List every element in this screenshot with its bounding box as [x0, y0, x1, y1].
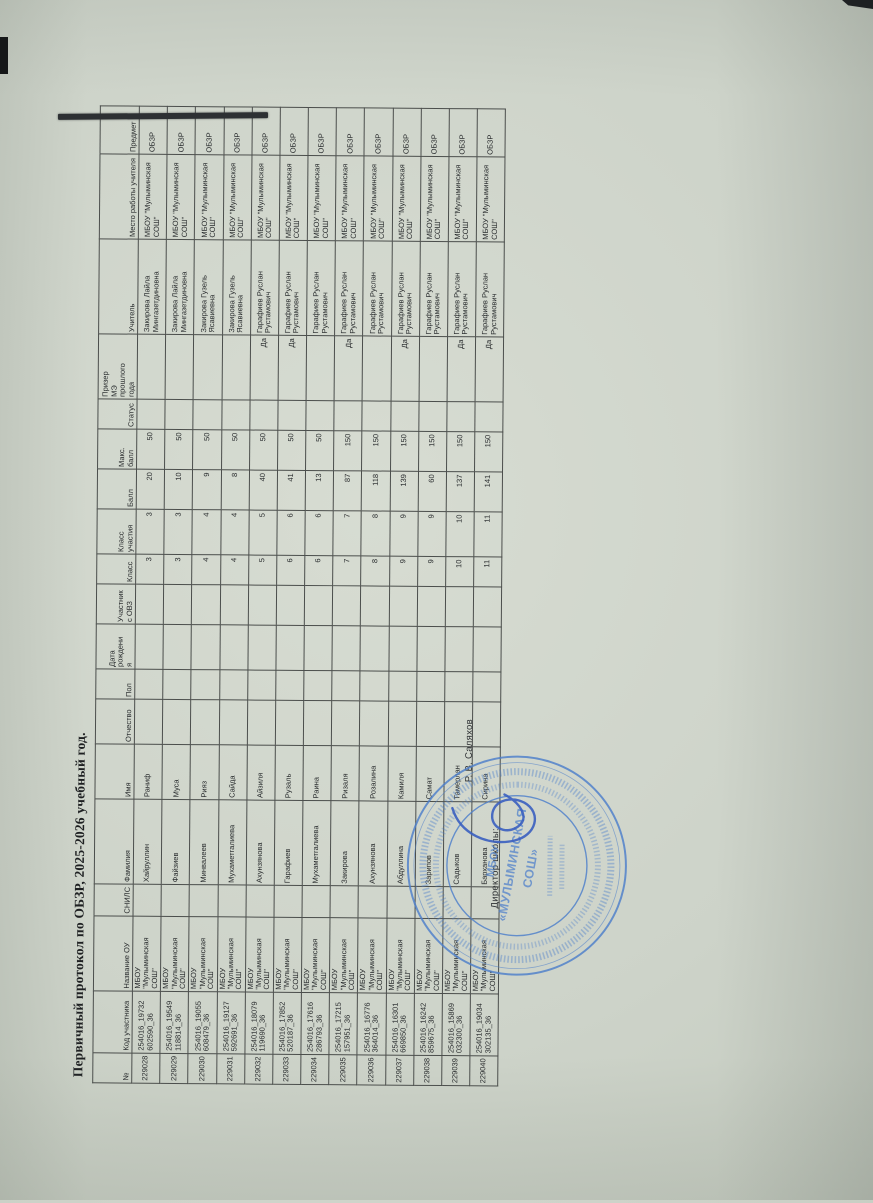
- table-cell: Розалина: [359, 746, 388, 801]
- table-cell: 9: [389, 557, 417, 587]
- table-cell: 4: [192, 555, 220, 585]
- table-cell: МБОУ "Мулыминская СОШ": [132, 916, 161, 991]
- table-cell: Айзиля: [247, 745, 276, 800]
- table-cell: [390, 402, 418, 432]
- table-cell: 50: [165, 430, 193, 470]
- table-cell: [417, 587, 445, 627]
- table-cell: [276, 586, 304, 626]
- table-cell: [218, 885, 246, 917]
- table-cell: 254016_18079 119690_36: [245, 992, 274, 1054]
- table-cell: 10: [164, 470, 192, 510]
- table-cell: [358, 886, 386, 918]
- table-cell: 229040: [470, 1056, 498, 1086]
- table-cell: [445, 672, 473, 702]
- table-cell: 229028: [132, 1053, 160, 1083]
- table-cell: МБОУ "Мулыминская СОШ": [330, 918, 359, 993]
- table-cell: 254016_19034 302135_36: [470, 994, 499, 1056]
- rotated-document: Первичный протокол по ОБЗР, 2025-2026 уч…: [0, 0, 873, 1200]
- table-cell: 40: [249, 470, 277, 510]
- table-cell: [163, 700, 192, 745]
- table-cell: 150: [390, 432, 418, 472]
- column-header: Призер МЭ прошлого года: [98, 334, 138, 399]
- table-cell: ОБЗР: [449, 109, 478, 157]
- table-cell: [163, 625, 192, 670]
- table-cell: МБОУ "Мулыминская СОШ": [364, 156, 393, 241]
- table-cell: 50: [193, 430, 221, 470]
- table-cell: МБОУ "Мулыминская СОШ": [195, 155, 224, 240]
- column-header: Класс: [97, 554, 136, 584]
- column-header: Имя: [95, 744, 134, 799]
- table-cell: МБОУ "Мулыминская СОШ": [189, 917, 218, 992]
- table-cell: Файзиев: [161, 800, 190, 885]
- table-cell: Гарафиев Руслан Рустамович: [278, 241, 307, 336]
- table-cell: [163, 670, 191, 700]
- table-cell: МБОУ "Мулыминская СОШ": [161, 916, 190, 991]
- column-header: №: [93, 1053, 132, 1083]
- table-cell: [388, 702, 417, 747]
- table-cell: [133, 885, 161, 917]
- table-cell: [219, 670, 247, 700]
- table-cell: [221, 400, 249, 430]
- table-cell: 254016_19549 118814_36: [160, 991, 189, 1053]
- table-cell: [219, 625, 248, 670]
- table-cell: 229039: [442, 1056, 470, 1086]
- column-header: Код участника: [93, 991, 132, 1053]
- table-cell: МБОУ "Мулыминская СОШ": [336, 156, 365, 241]
- table-cell: 5: [248, 555, 276, 585]
- table-cell: 5: [249, 510, 278, 555]
- table-cell: 229033: [273, 1054, 301, 1084]
- document-content: Первичный протокол по ОБЗР, 2025-2026 уч…: [0, 0, 873, 1203]
- table-cell: 254016_19127 592691_36: [216, 992, 245, 1054]
- table-cell: МБОУ "Мулыминская СОШ": [476, 157, 505, 242]
- table-cell: 229030: [188, 1054, 216, 1084]
- table-cell: 3: [136, 510, 165, 555]
- table-cell: [247, 670, 275, 700]
- table-cell: [276, 626, 305, 671]
- table-cell: [137, 400, 165, 430]
- table-cell: Раниф: [134, 745, 163, 800]
- table-cell: [248, 625, 277, 670]
- table-cell: [332, 586, 360, 626]
- table-cell: 6: [305, 556, 333, 586]
- table-cell: МБОУ "Мулыминская СОШ": [307, 156, 336, 241]
- table-cell: Гарафиев Руслан Рустамович: [363, 241, 392, 336]
- table-cell: Мухаметгалиева: [302, 801, 331, 886]
- table-cell: МБОУ "Мулыминская СОШ": [301, 917, 330, 992]
- table-cell: Да: [278, 336, 307, 401]
- table-cell: 229038: [413, 1055, 441, 1085]
- table-cell: [304, 586, 332, 626]
- table-cell: Гарафиев Руслан Рустамович: [391, 242, 420, 337]
- table-cell: Закирова Гузель Ясавиевна: [222, 240, 251, 335]
- table-cell: [304, 671, 332, 701]
- table-cell: ОБЗР: [280, 108, 309, 156]
- table-cell: Ризаля: [331, 746, 360, 801]
- table-cell: [165, 335, 194, 400]
- column-header: Пол: [96, 669, 135, 699]
- table-cell: [332, 626, 361, 671]
- table-cell: [165, 400, 193, 430]
- table-cell: 87: [333, 471, 361, 511]
- table-cell: ОБЗР: [421, 109, 450, 157]
- column-header: Место работы учителя: [99, 154, 139, 239]
- table-cell: 50: [249, 430, 277, 470]
- table-cell: [247, 700, 276, 745]
- table-cell: [362, 401, 390, 431]
- table-cell: [191, 700, 220, 745]
- table-cell: [275, 701, 304, 746]
- table-cell: Гарафиев Руслан Рустамович: [419, 242, 448, 337]
- table-cell: 3: [164, 510, 193, 555]
- table-cell: [302, 886, 330, 918]
- table-cell: 150: [334, 431, 362, 471]
- table-cell: 254016_17852 520187_36: [273, 992, 302, 1054]
- table-cell: [388, 672, 416, 702]
- table-cell: 254016_19732 602590_36: [132, 991, 161, 1053]
- table-cell: 254016_17616 286793_36: [301, 992, 330, 1054]
- column-header: Дата рождени я: [96, 624, 135, 669]
- table-cell: [332, 671, 360, 701]
- table-cell: Да: [334, 336, 363, 401]
- table-cell: [137, 335, 166, 400]
- table-cell: МБОУ "Мулыминская СОШ": [138, 155, 167, 240]
- table-cell: 229032: [244, 1054, 272, 1084]
- school-stamp: МБОУ «МУЛЫМИНСКАЯ СОШ»: [403, 752, 631, 980]
- table-cell: 50: [306, 431, 334, 471]
- table-cell: 9: [389, 512, 418, 557]
- table-cell: [475, 402, 503, 432]
- table-cell: 254016_16301 669850_36: [385, 993, 414, 1055]
- table-cell: МБОУ "Мулыминская СОШ": [273, 917, 302, 992]
- table-cell: 150: [418, 432, 446, 472]
- column-header: Участник с ОВЗ: [96, 584, 135, 624]
- table-cell: Гарафиев Руслан Рустамович: [335, 241, 364, 336]
- table-cell: [303, 701, 332, 746]
- table-cell: 4: [192, 510, 221, 555]
- table-cell: Да: [447, 337, 476, 402]
- table-cell: 60: [418, 472, 446, 512]
- table-cell: [135, 585, 163, 625]
- table-cell: 9: [418, 512, 447, 557]
- table-cell: [416, 702, 445, 747]
- table-cell: [246, 885, 274, 917]
- table-cell: [274, 886, 302, 918]
- table-cell: 141: [474, 472, 502, 512]
- table-cell: 150: [446, 432, 474, 472]
- table-cell: МБОУ "Мулыминская СОШ": [358, 918, 387, 993]
- table-cell: [250, 400, 278, 430]
- table-cell: 254016_16242 859675_36: [414, 993, 443, 1055]
- table-cell: [447, 402, 475, 432]
- table-cell: Муса: [162, 745, 191, 800]
- table-cell: [134, 700, 163, 745]
- table-cell: [417, 627, 446, 672]
- table-cell: [278, 401, 306, 431]
- table-cell: [360, 671, 388, 701]
- scan-artifact-left-edge: [0, 37, 8, 74]
- table-cell: [332, 701, 361, 746]
- column-header: СНИЛС: [94, 884, 133, 916]
- table-cell: 139: [390, 472, 418, 512]
- table-cell: Закирова: [330, 801, 359, 886]
- table-cell: 10: [446, 512, 475, 557]
- table-cell: 229029: [160, 1053, 188, 1083]
- table-cell: [163, 585, 191, 625]
- column-header: Отчество: [95, 699, 134, 744]
- table-cell: ОБЗР: [336, 108, 365, 156]
- table-cell: [416, 672, 444, 702]
- table-cell: 6: [305, 511, 334, 556]
- column-header: Статус: [98, 399, 137, 429]
- table-cell: [135, 670, 163, 700]
- table-cell: 50: [137, 430, 165, 470]
- table-cell: 229034: [301, 1054, 329, 1084]
- table-cell: [362, 336, 391, 401]
- column-header: Класс участия: [97, 509, 136, 554]
- table-cell: 150: [475, 432, 503, 472]
- table-cell: МБОУ "Мулыминская СОШ": [420, 157, 449, 242]
- table-cell: [334, 401, 362, 431]
- table-cell: [193, 400, 221, 430]
- table-cell: МБОУ "Мулыминская СОШ": [166, 155, 195, 240]
- table-cell: 41: [277, 471, 305, 511]
- table-cell: 8: [361, 511, 390, 556]
- table-cell: 50: [221, 430, 249, 470]
- table-cell: [419, 337, 448, 402]
- table-cell: Гарафиев Руслан Рустамович: [447, 242, 476, 337]
- table-cell: [306, 336, 335, 401]
- stamp-center-line3: СОШ»: [520, 847, 541, 889]
- table-cell: Рузаль: [275, 746, 304, 801]
- table-cell: ОБЗР: [477, 109, 506, 157]
- table-cell: Закирова Лайла Мингазетдиновна: [138, 240, 167, 335]
- table-cell: ОБЗР: [364, 108, 393, 156]
- column-header: Балл: [97, 469, 136, 509]
- table-cell: [445, 587, 473, 627]
- table-cell: Да: [475, 337, 504, 402]
- table-cell: [388, 627, 417, 672]
- table-cell: [191, 670, 219, 700]
- table-cell: [276, 671, 304, 701]
- table-cell: 137: [446, 472, 474, 512]
- table-cell: 9: [193, 470, 221, 510]
- table-cell: [419, 402, 447, 432]
- table-cell: Да: [391, 337, 420, 402]
- table-cell: 50: [277, 431, 305, 471]
- table-cell: [360, 701, 389, 746]
- column-header: Фамилия: [94, 799, 134, 884]
- table-cell: [222, 335, 251, 400]
- table-cell: [220, 585, 248, 625]
- column-header: Учитель: [99, 239, 139, 334]
- table-cell: 11: [474, 512, 503, 557]
- table-cell: Гарафиев: [274, 801, 303, 886]
- table-cell: 8: [361, 556, 389, 586]
- table-cell: [189, 885, 217, 917]
- table-cell: 229031: [216, 1054, 244, 1084]
- page-title: Первичный протокол по ОБЗР, 2025-2026 уч…: [70, 732, 89, 1077]
- table-cell: [161, 885, 189, 917]
- table-cell: Ахунзянова: [246, 800, 275, 885]
- table-cell: ОБЗР: [308, 108, 337, 156]
- table-cell: Хайруллин: [133, 800, 162, 885]
- table-cell: 13: [305, 471, 333, 511]
- table-cell: 254016_15869 032300_36: [442, 994, 471, 1056]
- table-cell: 3: [136, 555, 164, 585]
- table-cell: МБОУ "Мулыминская СОШ": [279, 156, 308, 241]
- table-cell: 20: [136, 470, 164, 510]
- table-cell: Раина: [303, 746, 332, 801]
- column-header: Название ОУ: [93, 916, 133, 991]
- table-cell: 118: [362, 471, 390, 511]
- table-cell: Да: [250, 335, 279, 400]
- table-cell: 4: [220, 555, 248, 585]
- table-cell: [248, 585, 276, 625]
- table-cell: [219, 700, 248, 745]
- table-cell: Ахунзянова: [359, 801, 388, 886]
- table-cell: МБОУ "Мулыминская СОШ": [392, 157, 421, 242]
- table-cell: [193, 335, 222, 400]
- table-cell: [473, 587, 501, 627]
- table-cell: 229037: [385, 1055, 413, 1085]
- table-cell: Закирова Гузель Ясавиевна: [194, 240, 223, 335]
- table-cell: 11: [474, 557, 502, 587]
- signature-squiggle: [446, 788, 546, 853]
- table-cell: [389, 587, 417, 627]
- table-cell: МБОУ "Мулыминская СОШ": [448, 157, 477, 242]
- table-cell: [304, 626, 333, 671]
- table-cell: Закирова Лайла Мингазетдиновна: [166, 240, 195, 335]
- table-cell: 8: [221, 470, 249, 510]
- table-cell: Мухаметгалиева: [218, 800, 247, 885]
- table-cell: 254016_19055 608479_36: [188, 992, 217, 1054]
- table-cell: 254016_17215 157951_36: [329, 993, 358, 1055]
- table-cell: Сайда: [218, 745, 247, 800]
- table-cell: 229036: [357, 1055, 385, 1085]
- table-cell: 254016_16776 364014_36: [357, 993, 386, 1055]
- table-cell: Гарафиев Руслан Рустамович: [307, 241, 336, 336]
- column-header: Макс. балл: [98, 429, 137, 469]
- table-cell: МБОУ "Мулыминская СОШ": [251, 155, 280, 240]
- table-cell: 6: [276, 556, 304, 586]
- table-cell: МБОУ "Мулыминская СОШ": [245, 917, 274, 992]
- table-cell: Гарафиев Руслан Рустамович: [250, 240, 279, 335]
- table-cell: [192, 585, 220, 625]
- table-cell: МБОУ "Мулыминская СОШ": [223, 155, 252, 240]
- table-cell: [330, 886, 358, 918]
- table-cell: 229035: [329, 1055, 357, 1085]
- table-cell: [135, 625, 164, 670]
- table-cell: 7: [333, 511, 362, 556]
- table-cell: 7: [333, 556, 361, 586]
- table-cell: 10: [445, 557, 473, 587]
- table-cell: [361, 586, 389, 626]
- table-cell: Гарафиев Руслан Рустамович: [476, 242, 505, 337]
- table-cell: [306, 401, 334, 431]
- table-cell: 9: [417, 557, 445, 587]
- table-cell: [473, 627, 502, 672]
- table-cell: МБОУ "Мулыминская СОШ": [217, 917, 246, 992]
- table-cell: Минвалеев: [190, 800, 219, 885]
- table-cell: 6: [277, 511, 306, 556]
- table-cell: 4: [220, 510, 249, 555]
- table-cell: Рияз: [190, 745, 219, 800]
- table-cell: [472, 702, 501, 747]
- table-cell: [445, 627, 474, 672]
- table-cell: [473, 672, 501, 702]
- table-cell: [360, 626, 389, 671]
- table-cell: 3: [164, 555, 192, 585]
- table-cell: 150: [362, 431, 390, 471]
- table-cell: ОБЗР: [393, 109, 422, 157]
- table-cell: [191, 625, 220, 670]
